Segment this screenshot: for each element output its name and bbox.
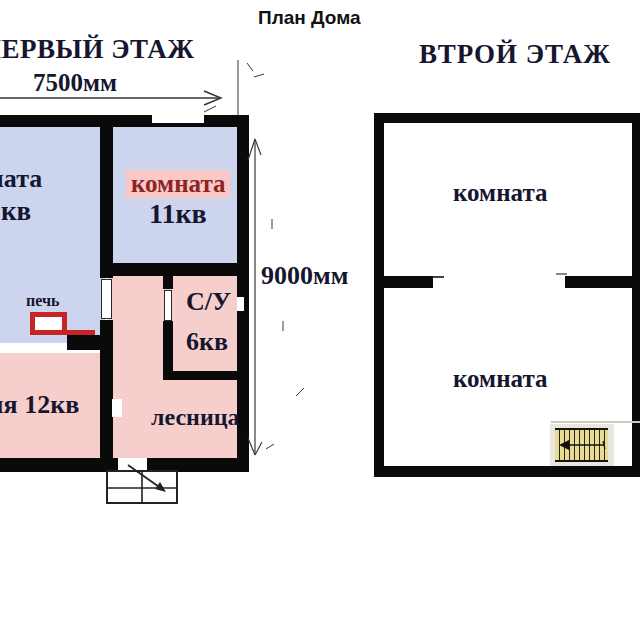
- stove-label: печь: [26, 293, 59, 310]
- stairs-landing-line: [551, 421, 640, 423]
- dim-height-label: 9000мм: [261, 262, 348, 289]
- living-room-label: комната: [0, 165, 42, 192]
- wall: [0, 115, 249, 127]
- window-opening: [237, 297, 244, 311]
- wall: [67, 335, 113, 350]
- dim-width-label: 7500мм: [33, 70, 117, 96]
- wall: [374, 113, 640, 123]
- stairs-icon: [555, 428, 608, 462]
- wall: [384, 276, 433, 288]
- wall: [374, 113, 384, 477]
- dim-height-arrow: [247, 63, 304, 455]
- second-floor-heading: ВТРОЙ ЭТАЖ: [419, 40, 611, 68]
- floor-plan-canvas: План Дома ПЕРВЫЙ ЭТАЖ ВТРОЙ ЭТАЖ 7500мм …: [0, 0, 640, 640]
- wall: [102, 263, 249, 276]
- wall: [565, 276, 632, 288]
- door-opening: [164, 290, 172, 321]
- wall: [163, 276, 173, 289]
- bathroom-label: С/У: [186, 288, 231, 315]
- stove-flue-line: [66, 330, 95, 335]
- stove-icon: [30, 312, 67, 335]
- window-sill-line: [152, 123, 204, 125]
- second-floor-room-bottom-label: комната: [453, 366, 547, 392]
- kitchen-label: кухня 12кв: [0, 391, 79, 418]
- stairs-label: лесница: [151, 405, 240, 430]
- wall-thin-lines: [433, 274, 567, 277]
- second-floor-room-top-label: комната: [453, 180, 547, 206]
- first-floor-heading: ПЕРВЫЙ ЭТАЖ: [0, 35, 194, 63]
- room-11-label: комната: [126, 170, 230, 198]
- page-title: План Дома: [258, 8, 361, 28]
- passage-opening: [0, 343, 68, 353]
- door-opening: [112, 399, 122, 417]
- living-room-area: кв: [1, 197, 31, 225]
- wall: [374, 466, 640, 477]
- room-11-area: 11кв: [149, 199, 207, 228]
- entrance-door-opening: [118, 458, 147, 472]
- wall: [100, 115, 113, 278]
- bathroom-area: 6кв: [186, 328, 228, 355]
- door-opening: [101, 279, 112, 319]
- wall: [163, 371, 243, 380]
